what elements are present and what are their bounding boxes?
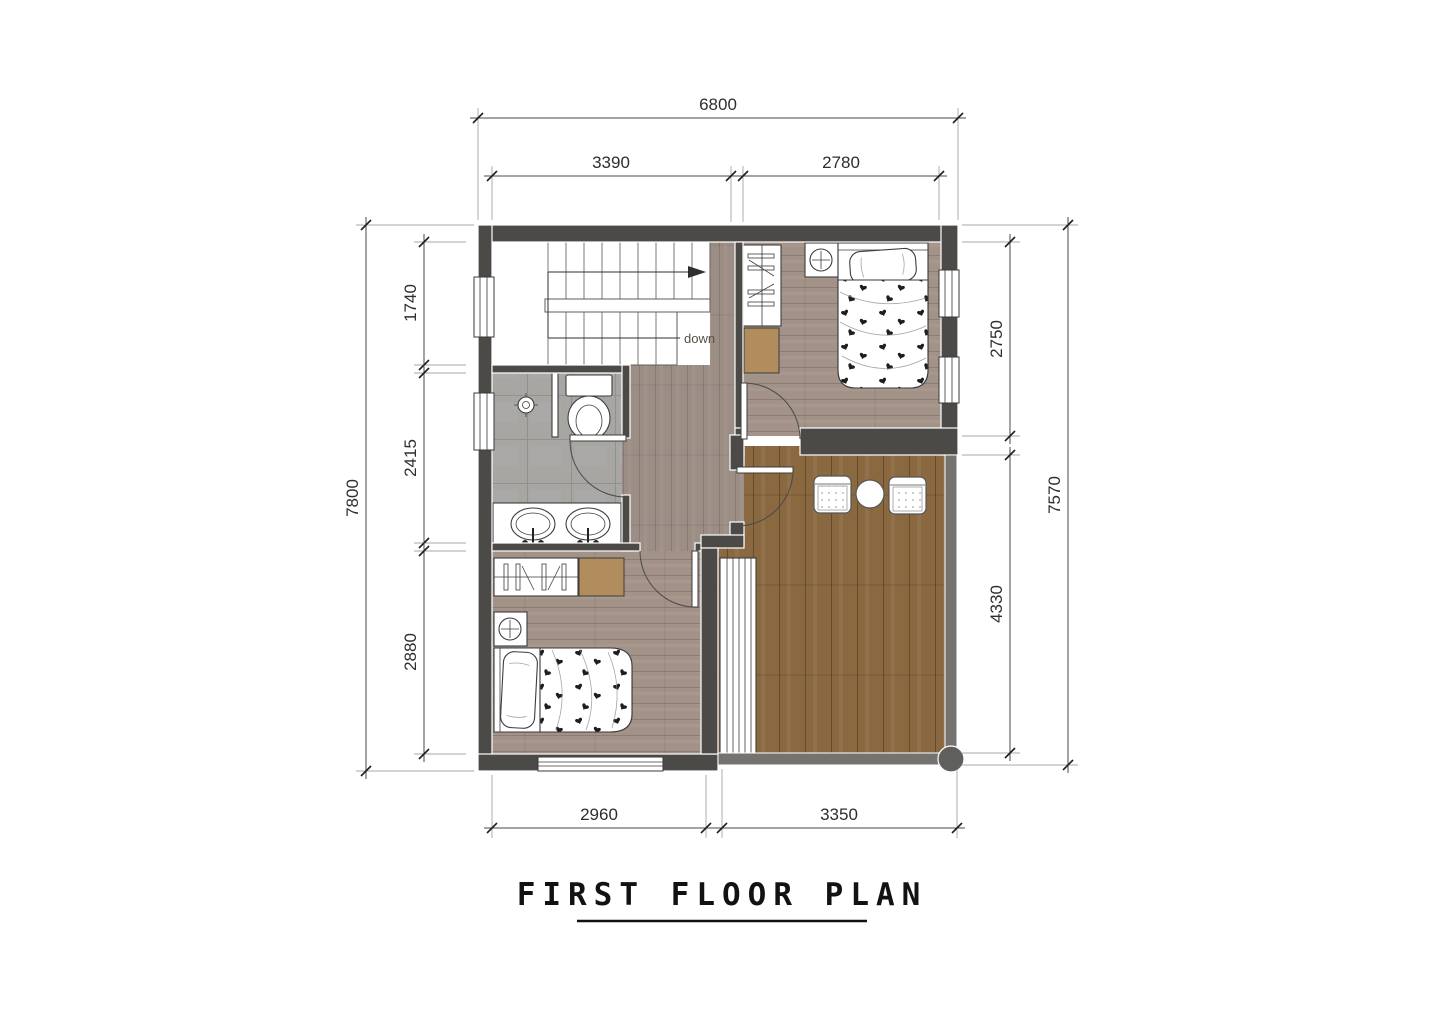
dimension-left-1740: 1740 [401, 234, 466, 373]
window-bathroom-left [474, 393, 494, 450]
step-ladder [720, 558, 756, 754]
dimension-top-3390: 3390 [484, 153, 739, 222]
plan-title: FIRST FLOOR PLAN [517, 877, 928, 913]
wall-bathroom-right-a [622, 365, 630, 438]
dimension-bottom-2960: 2960 [484, 775, 714, 838]
svg-text:2415: 2415 [401, 439, 420, 477]
stair-rail [545, 299, 710, 312]
window-bedroomTR-right-1 [939, 270, 959, 317]
wall-bedroomTR-bottom-b [800, 428, 958, 455]
wall-balcony-connector [701, 535, 744, 548]
dimension-right-overall: 7570 [962, 217, 1078, 773]
toilet-icon [566, 375, 612, 440]
svg-text:2880: 2880 [401, 633, 420, 671]
svg-text:7570: 7570 [1045, 476, 1064, 514]
wall-balcony-right [945, 455, 957, 765]
wall-bathroom-bedroom-a [492, 543, 640, 551]
dimension-bottom-3350: 3350 [714, 769, 965, 838]
column [938, 746, 964, 772]
bed [838, 243, 928, 388]
blanket [838, 280, 928, 388]
dimension-right-2750: 2750 [962, 234, 1020, 444]
svg-text:1740: 1740 [401, 284, 420, 322]
pillow [500, 651, 538, 729]
bed [494, 648, 632, 732]
dimension-top-overall: 6800 [470, 95, 966, 220]
armchair-right [889, 477, 926, 514]
cabinet [579, 558, 624, 596]
wardrobe [743, 245, 781, 326]
svg-text:7800: 7800 [343, 479, 362, 517]
dimension-right-4330: 4330 [962, 447, 1020, 761]
wall-balcony-bottom [718, 753, 957, 765]
svg-text:4330: 4330 [987, 585, 1006, 623]
armchair-left [814, 476, 851, 513]
shower-partition [552, 373, 558, 437]
nightstand-lamp [805, 243, 838, 277]
wall-bedroomLL-right [701, 548, 718, 754]
svg-text:6800: 6800 [699, 95, 737, 114]
title-block: FIRST FLOOR PLAN [517, 877, 928, 921]
wall-balcony-left-upper [730, 435, 744, 470]
pillow [849, 248, 917, 285]
wall-right-upper [941, 225, 958, 455]
svg-text:2780: 2780 [822, 153, 860, 172]
wardrobe [494, 558, 578, 596]
cabinet [744, 328, 779, 373]
window-bedroomTR-right-2 [939, 357, 959, 403]
dimension-top-2780: 2780 [735, 153, 947, 222]
floor-plan-page: down [0, 0, 1445, 1022]
nightstand-lamp [494, 612, 527, 646]
svg-text:2750: 2750 [987, 320, 1006, 358]
svg-text:3350: 3350 [820, 805, 858, 824]
blanket [540, 648, 632, 732]
dimension-left-2415: 2415 [401, 365, 466, 551]
wall-stair-bathroom [492, 365, 630, 373]
window-stairwell-left [474, 277, 494, 337]
wall-top [478, 225, 958, 242]
svg-text:2960: 2960 [580, 805, 618, 824]
down-label: down [684, 331, 715, 346]
floor-plan-drawing: down [0, 0, 1445, 1022]
svg-text:3390: 3390 [592, 153, 630, 172]
dimension-left-2880: 2880 [401, 543, 466, 762]
window-bedroomLL-bottom [538, 757, 663, 771]
round-table [856, 480, 884, 508]
